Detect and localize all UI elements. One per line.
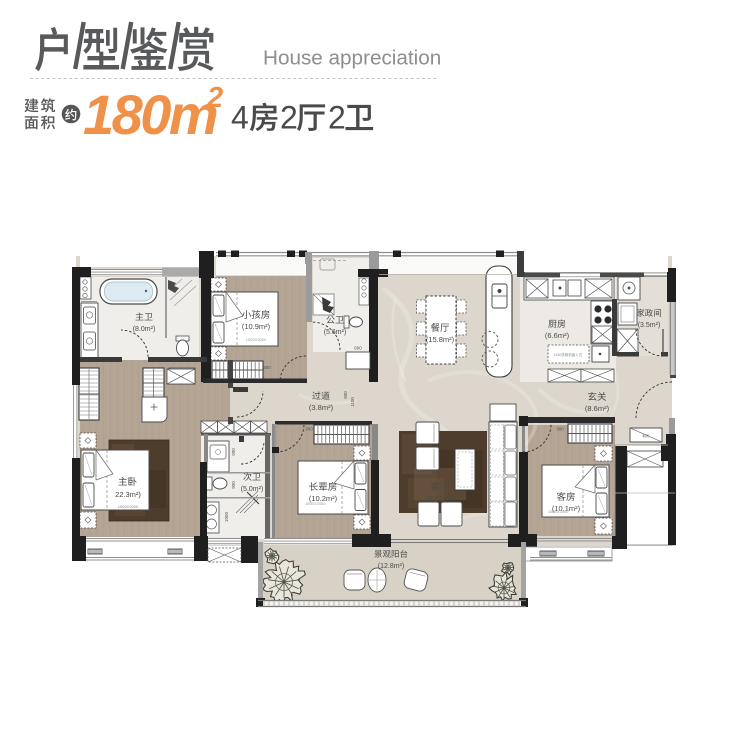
svg-text:(3.8m²): (3.8m²) xyxy=(309,403,334,412)
svg-text:(10.9m²): (10.9m²) xyxy=(242,322,271,331)
svg-text:House appreciation: House appreciation xyxy=(263,47,441,70)
svg-text:300: 300 xyxy=(263,365,271,370)
svg-text:1150洗碗机嵌入式: 1150洗碗机嵌入式 xyxy=(554,352,583,357)
svg-text:(5.0m²): (5.0m²) xyxy=(241,486,264,493)
svg-text:(8.0m²): (8.0m²) xyxy=(133,326,156,333)
svg-text:(8.6m²): (8.6m²) xyxy=(585,404,610,413)
svg-text:990: 990 xyxy=(231,448,236,456)
svg-text:1500X2000: 1500X2000 xyxy=(548,509,569,514)
svg-text:900: 900 xyxy=(231,481,236,489)
svg-text:300: 300 xyxy=(305,427,313,432)
svg-text:1500X2000: 1500X2000 xyxy=(246,337,267,342)
svg-text:4: 4 xyxy=(231,100,249,136)
svg-text:(3.5m²): (3.5m²) xyxy=(638,322,661,329)
svg-text:300: 300 xyxy=(556,427,564,432)
svg-text:(6.6m²): (6.6m²) xyxy=(545,331,570,340)
svg-text:800: 800 xyxy=(343,391,348,399)
svg-text:2: 2 xyxy=(280,100,298,136)
svg-text:600: 600 xyxy=(354,346,362,351)
svg-text:2: 2 xyxy=(328,100,346,136)
svg-text:2: 2 xyxy=(206,82,223,114)
svg-text:(12.8m²): (12.8m²) xyxy=(378,563,404,570)
svg-text:(20.1m²): (20.1m²) xyxy=(426,494,455,503)
svg-text:180m: 180m xyxy=(83,83,217,146)
svg-text:1050: 1050 xyxy=(224,511,229,522)
svg-text:(5.6m²): (5.6m²) xyxy=(324,329,347,336)
svg-text:1500X2000: 1500X2000 xyxy=(118,504,139,509)
svg-text:鞋柜: 鞋柜 xyxy=(643,433,651,438)
svg-text:(15.8m²): (15.8m²) xyxy=(426,335,455,344)
svg-text:1100: 1100 xyxy=(350,397,355,407)
svg-text:22.3m²): 22.3m²) xyxy=(115,490,141,499)
svg-text:1500X2000: 1500X2000 xyxy=(305,501,326,506)
